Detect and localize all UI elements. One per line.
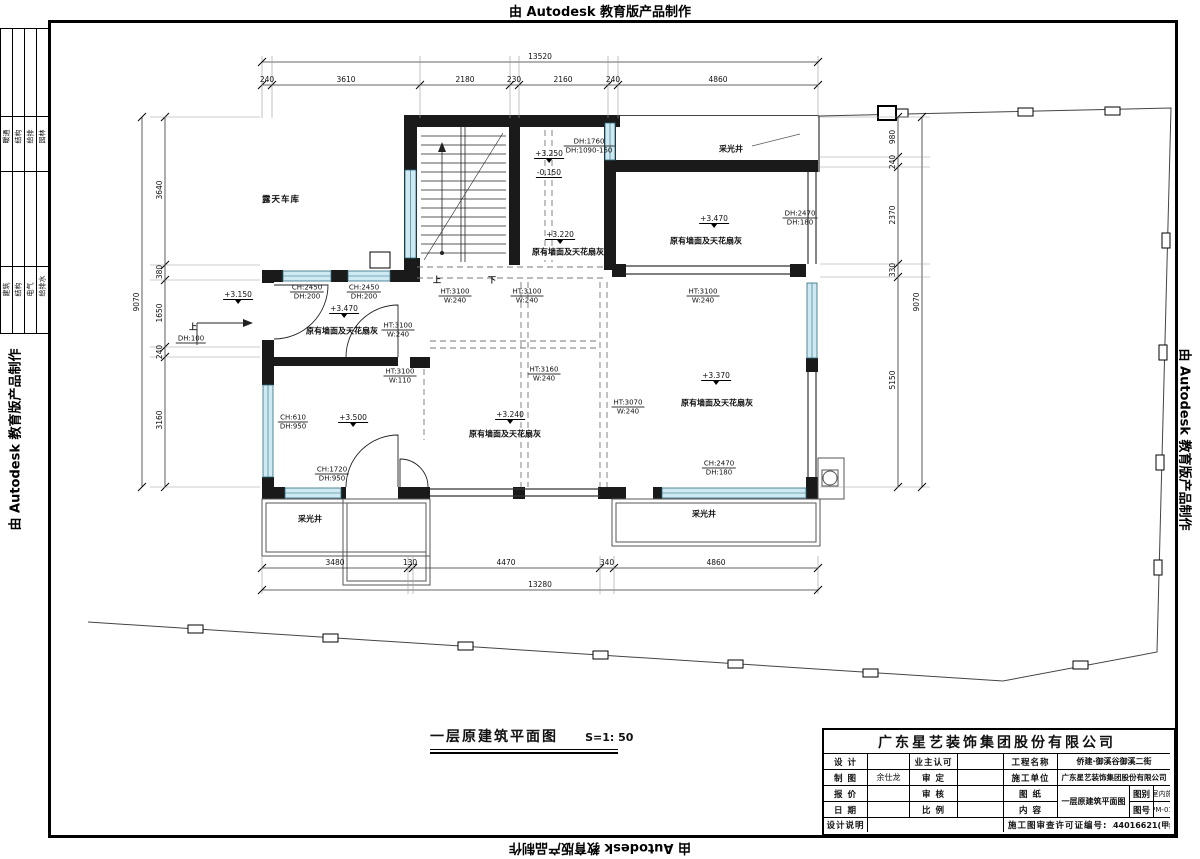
size-tag: HT:3100W:240 — [511, 288, 544, 305]
size-tag: HT:3070W:240 — [612, 399, 645, 416]
field-category: 图别 — [1130, 786, 1154, 802]
plan-title: 一层原建筑平面图 S=1: 50 — [430, 726, 633, 754]
edu-banner-bottom: 由 Autodesk 教育版产品制作 — [509, 840, 691, 859]
room-label: 下 — [488, 275, 496, 286]
field-number: 图号 — [1130, 802, 1154, 818]
stamp-cell: 结构 — [15, 133, 23, 144]
value-check — [958, 786, 1004, 802]
value-ratio — [958, 802, 1004, 818]
field-builder: 施工单位 — [1004, 770, 1058, 786]
level-mark: +3.150 — [223, 290, 253, 304]
field-check: 审 核 — [910, 786, 958, 802]
value-number: PM-01 — [1154, 802, 1170, 818]
size-tag: CH:2470DH:180 — [702, 460, 736, 477]
drawing-sheet: 由 Autodesk 教育版产品制作 由 Autodesk 教育版产品制作 由 … — [0, 0, 1200, 859]
edu-banner-right: 由 Autodesk 教育版产品制作 — [1177, 330, 1196, 550]
room-label: 采光井 — [298, 514, 322, 525]
plan-title-text: 一层原建筑平面图 — [430, 726, 558, 746]
field-date: 日 期 — [824, 802, 868, 818]
value-drawing: 一层原建筑平面图 — [1058, 786, 1130, 818]
edu-banner-left: 由 Autodesk 教育版产品制作 — [5, 330, 24, 550]
field-ratio: 比 例 — [910, 802, 958, 818]
stamp-cell: 给排水 — [39, 286, 47, 297]
size-tag: CH:2450DH:200 — [290, 284, 324, 301]
room-label: 露天车库 — [262, 193, 300, 205]
room-label: 上 — [189, 322, 197, 333]
level-mark: +3.470 — [699, 214, 729, 228]
size-tag: CH:1720DH:950 — [315, 466, 349, 483]
value-builder: 广东星艺装饰集团股份有限公司 — [1058, 770, 1170, 786]
field-quote: 报 价 — [824, 786, 868, 802]
room-label: 原有墙面及天花扇灰 — [532, 247, 604, 258]
field-design: 设 计 — [824, 754, 868, 770]
field-project: 工程名称 — [1004, 754, 1058, 770]
value-approve — [958, 770, 1004, 786]
field-note: 设计说明 — [824, 818, 868, 832]
size-tag: HT:3160W:240 — [528, 366, 561, 383]
title-underline — [430, 749, 618, 750]
size-tag: DH:100 — [176, 335, 206, 344]
size-tag: HT:3100W:240 — [439, 288, 472, 305]
size-tag: HT:3100W:240 — [382, 322, 415, 339]
room-label: 原有墙面及天花扇灰 — [469, 429, 541, 440]
field-content: 内 容 — [1004, 802, 1058, 818]
level-mark: -0.150 — [536, 168, 562, 178]
room-label: 原有墙面及天花扇灰 — [306, 326, 378, 337]
stamp-cell: 电气 — [27, 286, 35, 297]
stamp-cell: 建筑 — [3, 286, 11, 297]
stamp-cell: 结构 — [15, 286, 23, 297]
level-mark: +3.500 — [338, 413, 368, 427]
value-project: 侨建·御溪谷御溪二街 — [1058, 754, 1170, 770]
room-label: 原有墙面及天花扇灰 — [681, 398, 753, 409]
size-tag: HT:3100W:110 — [384, 368, 417, 385]
plan-scale: S=1: 50 — [585, 731, 633, 744]
level-mark: +3.470 — [329, 304, 359, 318]
level-mark: +3.370 — [701, 371, 731, 385]
title-underline2 — [430, 752, 618, 754]
value-note — [868, 818, 1004, 832]
size-tag: DH:2470DH:180 — [783, 210, 818, 227]
level-mark: +3.250 — [534, 149, 564, 163]
field-owner: 业主认可 — [910, 754, 958, 770]
room-label: 原有墙面及天花扇灰 — [670, 236, 742, 247]
value-category: 室内施 — [1154, 786, 1170, 802]
value-quote — [868, 786, 910, 802]
level-mark: +3.240 — [495, 410, 525, 424]
value-draftsman: 余仕龙 — [868, 770, 910, 786]
stamp-cell: 给排 — [27, 133, 35, 144]
room-label: 上 — [433, 275, 441, 286]
value-owner — [958, 754, 1004, 770]
size-tag: DH:1760DH:1090-150 — [564, 138, 615, 155]
size-tag: CH:2450DH:200 — [347, 284, 381, 301]
room-label: 采光井 — [719, 144, 743, 155]
value-date — [868, 802, 910, 818]
stamp-cell: 暖通 — [3, 133, 11, 144]
room-label: 采光井 — [692, 509, 716, 520]
size-tag: CH:610DH:950 — [278, 414, 308, 431]
company-name: 广东星艺装饰集团股份有限公司 — [824, 730, 1170, 754]
field-permit: 施工图审查许可证编号: — [1004, 818, 1112, 832]
value-permit: A144016621(甲级) — [1112, 818, 1170, 832]
discipline-stamp: 暖通结构给排园林建筑结构电气给排水 — [0, 28, 49, 334]
field-sheet: 图 纸 — [1004, 786, 1058, 802]
size-tag: HT:3100W:240 — [687, 288, 720, 305]
stamp-cell: 园林 — [39, 133, 47, 144]
level-mark: +3.220 — [545, 230, 575, 244]
field-approve: 审 定 — [910, 770, 958, 786]
field-draft: 制 图 — [824, 770, 868, 786]
title-block: 广东星艺装饰集团股份有限公司 设 计 业主认可 工程名称 侨建·御溪谷御溪二街 … — [822, 728, 1176, 836]
value-design — [868, 754, 910, 770]
edu-banner-top: 由 Autodesk 教育版产品制作 — [509, 1, 691, 20]
